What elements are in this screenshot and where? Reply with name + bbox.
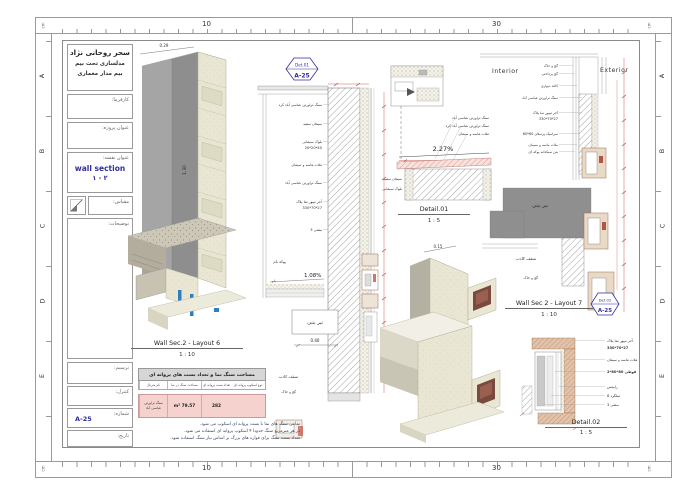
detail01-slope: 2.27% <box>433 145 454 153</box>
l7-label-4: آجر تیپور نما پلاک <box>533 110 559 115</box>
layout7-red-dims <box>617 58 626 312</box>
grid-letter-a-right: A <box>658 74 666 78</box>
titleblock-scale-box: مقیاس: <box>88 196 133 215</box>
roof-slope-line <box>270 279 324 282</box>
grid-letter-e-left: E <box>38 374 46 378</box>
roof-fill-label: پوکه بام <box>273 259 286 264</box>
slope-line <box>399 153 489 157</box>
titleblock-author-box: سحر روحانی نژاد مدلسازی تحت بیم بیم مدار… <box>67 44 133 91</box>
drawn-label: ترسیم: <box>68 363 132 371</box>
grid-letter-b-left: B <box>38 149 46 153</box>
grid-letter-a-left: A <box>38 74 46 78</box>
detail01-key-drawing <box>391 66 443 106</box>
table-note-2: در هر مترمربع سنگ حدودا ۴ اسکوپ پروانه ا… <box>150 428 300 435</box>
l7-label-7: ملات ماسه و سیمان <box>528 143 558 147</box>
titleblock-date-box: تاریخ: <box>67 430 133 447</box>
material-labels: سنگ تراورتن عباسی آباد کرد سیمان سفید بل… <box>279 102 323 232</box>
callout-det01-sheet: A-25 <box>294 73 309 80</box>
table-title: مساحت سنگ نما و تعداد بست های پروانه ای <box>138 368 266 381</box>
table-data-row: سنگ تراورتن عباسی آباد 79.57 m² 282 <box>138 394 266 418</box>
l7-label-1: گچ پرداختی <box>541 71 558 76</box>
ruler-top-divider <box>352 17 353 34</box>
grid-letter-b-right: B <box>658 149 666 153</box>
detail01-labels-left: سیمان سفید بلوک سیمانی <box>382 177 402 191</box>
ruler-unit-top-left: cm <box>41 22 46 28</box>
ruler-unit-bottom-right: cm <box>647 465 652 471</box>
table-cell-count: 282 <box>201 395 231 417</box>
client-label: کارفرما: <box>68 95 132 103</box>
author-subtitle-2: بیم مدار معماری <box>68 67 132 77</box>
sheet-title-label: عنوان نقشه: <box>68 153 132 161</box>
ruler-label-10-top: 10 <box>202 20 211 28</box>
interior-label: Interior <box>492 68 519 75</box>
roof-lines <box>480 54 598 57</box>
table-cell-material: سنگ تراورتن عباسی آباد <box>139 395 167 417</box>
ruler-unit-bottom-left: cm <box>41 465 46 471</box>
author-name: سحر روحانی نژاد <box>68 45 132 57</box>
d2-label-4: رابیتس <box>607 385 618 389</box>
callout-det01-ref: Det.01 <box>295 63 309 68</box>
detail01-label-l0: سیمان سفید <box>383 177 402 181</box>
project-label: عنوان پروژه: <box>68 123 132 131</box>
table-cell-area: 79.57 m² <box>167 395 201 417</box>
sheet-title-number: ۲ - ۱ <box>68 173 132 182</box>
author-subtitle-1: مدلسازی تحت بیم <box>68 57 132 67</box>
layout7-scale: 1 : 10 <box>505 312 593 318</box>
axon-main-scale: 1 : 10 <box>131 352 243 358</box>
beam-label: تیر بتنی <box>307 320 323 326</box>
north-arrow-icon <box>68 197 85 214</box>
material-label-4: ملات ماسه و سیمان <box>292 163 323 167</box>
l7-label-0: گچ و خاک <box>544 63 559 68</box>
checked-label: کنترل: <box>68 387 132 395</box>
axon-main-dim-width: 0.29 <box>140 43 194 54</box>
ruler-unit-top-right: cm <box>647 22 652 28</box>
detail02-title: Detail.02 <box>545 419 627 428</box>
titleblock-project-box: عنوان پروژه: <box>67 122 133 149</box>
titleblock-notes-box: توضیحات: <box>67 218 133 359</box>
l7-plaster-label: گچ و خاک <box>523 275 538 280</box>
material-label-2: بلوک سیمانی <box>302 139 322 144</box>
blue-anchor-3 <box>214 308 219 312</box>
material-label-6: آجر تیپور نما پلاک <box>296 199 323 204</box>
scale-label: مقیاس: <box>89 197 132 205</box>
stone-coping <box>397 158 491 169</box>
date-label: تاریخ: <box>68 431 132 439</box>
drawing-sheet: 10 30 10 30 cm cm cm cm A B C D E A B C … <box>0 0 700 495</box>
plaster-label: گچ و خاک <box>281 389 296 394</box>
callout-det02-sheet: A-25 <box>598 308 612 314</box>
d2-label-6: نبشی 3 <box>607 403 619 407</box>
callout-det01: Det.01 A-25 <box>286 58 318 80</box>
axon-main-dim-height: 1.30 <box>182 165 188 175</box>
d2-label-3: قوطی 80*80*2 <box>607 370 637 374</box>
materials-table: مساحت سنگ نما و تعداد بست های پروانه ای … <box>138 368 266 418</box>
d2-label-0: آجر تیپور نما پلاک <box>607 338 634 343</box>
slope-label: 1.08% <box>304 273 321 279</box>
beam-block <box>136 268 166 300</box>
ruler-label-30-bottom: 30 <box>492 464 501 472</box>
ruler-label-30-top: 30 <box>492 20 501 28</box>
ruler-right-ticks <box>656 41 661 421</box>
material-label-0: سنگ تراورتن عباسی آباد کرد <box>279 102 322 107</box>
axon-main-title: Wall Sec.2 - Layout 6 <box>131 340 243 349</box>
frame-section <box>535 352 561 410</box>
grid-letter-d-left: D <box>39 298 47 303</box>
plaster-hatch <box>522 386 532 414</box>
grid-letter-e-right: E <box>658 374 666 378</box>
sheet-title: wall section <box>68 161 132 173</box>
mortar-left <box>405 169 413 200</box>
lower-hatch-column <box>562 238 584 286</box>
axon-small-dim-a: 0.15 <box>434 244 443 249</box>
ruler-label-10-bottom: 10 <box>202 464 211 472</box>
window-head-frame <box>582 148 606 178</box>
titleblock-checked-box: کنترل: <box>67 386 133 406</box>
ceiling-void-lines <box>482 244 538 248</box>
ceiling-slab <box>258 86 328 90</box>
l7-label-6: سرامیک پرسلان 60*60 <box>523 132 558 136</box>
detail01-label-l1: بلوک سیمانی <box>382 186 402 191</box>
material-label-1: سیمان سفید <box>303 122 322 126</box>
detail01-scale: 1 : 5 <box>398 218 470 224</box>
l7-label-2: کاغذ دیواری <box>541 84 559 88</box>
ruler-top-ticks <box>62 29 640 34</box>
d2-label-5: میلگرد 8 <box>607 393 620 398</box>
titleblock-number-box: شماره: A-25 <box>67 408 133 428</box>
titleblock-drawn-box: ترسیم: <box>67 362 133 384</box>
gravel-strip <box>266 284 324 289</box>
grid-letter-d-right: D <box>659 298 667 303</box>
layout7-leaders <box>559 66 582 152</box>
notes-label: توضیحات: <box>68 219 132 227</box>
ruler-left-ticks <box>46 41 51 421</box>
l7-beam-label: تیر بتنی <box>532 203 548 209</box>
l7-label-8: بتن سبکدانه پوکه ای <box>528 150 558 154</box>
layout7-material-labels: گچ و خاک گچ پرداختی کاغذ دیواری سنگ تراو… <box>522 63 559 154</box>
d2-label-1: 330*70*27 <box>607 346 629 350</box>
detail02-labels: آجر تیپور نما پلاک 330*70*27 ملات ماسه و… <box>607 338 638 407</box>
beam-dim: 0.40 <box>311 338 320 343</box>
detail02-scale: 1 : 5 <box>545 430 627 436</box>
material-label-5: سنگ تراورتن عباسی آباد <box>285 180 322 185</box>
ruler-bottom-ticks <box>62 462 640 467</box>
roof-label: بام <box>272 279 276 284</box>
table-header-area: مساحت سنگ در نما <box>167 381 201 389</box>
axon-main-view: 0.29 1.30 <box>128 40 268 340</box>
mortar-dot-band <box>360 88 369 393</box>
material-label-7: 330*70*27 <box>302 206 322 210</box>
d2-label-2: ملات ماسه و سیمان <box>607 358 638 362</box>
titleblock-client-box: کارفرما: <box>67 94 133 119</box>
l7-label-3: سنگ تراورتن عباسی آباد <box>522 95 558 100</box>
table-notes: تمامی سنگ های نما با بست پروانه ای اسکوپ… <box>150 421 300 443</box>
label-leaders <box>323 105 328 230</box>
layout7-view: Interior Exterior گچ و خاک گچ پرداختی کا… <box>478 50 632 342</box>
callout-det02-ref: Det.02 <box>599 298 612 303</box>
table-header-type: نوع اسکوپ پروانه ای <box>231 381 265 389</box>
wall-hatch-band <box>328 88 360 393</box>
scale-icon-box <box>67 196 86 215</box>
sheet-number: A-25 <box>75 415 92 423</box>
material-label-3: 20*20*40 <box>305 146 323 150</box>
detail01-title: Detail.01 <box>398 206 470 215</box>
interior-wall-lines <box>263 94 266 298</box>
table-cell-type <box>231 395 265 417</box>
table-header-material: نام متریال <box>139 381 167 389</box>
false-ceiling-label: سقف کاذب <box>279 374 299 379</box>
ruler-bottom-divider <box>352 461 353 478</box>
grid-letter-c-right: C <box>658 224 666 229</box>
titleblock-sheet-title-box: عنوان نقشه: wall section ۲ - ۱ <box>67 152 133 193</box>
table-note-3: تعداد بست سنگ برای قواره های بزرگ بر اسا… <box>150 435 300 442</box>
table-header-row: نام متریال مساحت سنگ در نما تعداد بست پر… <box>138 381 266 390</box>
layout7-title: Wall Sec 2 - Layout 7 <box>505 300 593 309</box>
l7-label-5: 330*70*27 <box>539 117 558 121</box>
table-header-count: تعداد بست پروانه ای <box>201 381 231 389</box>
l7-false-ceiling-label: سقف کاذب <box>516 256 537 261</box>
material-label-8: نبشی 3 <box>310 228 322 232</box>
grid-letter-c-left: C <box>38 224 46 229</box>
svg-text:0.29: 0.29 <box>160 43 169 48</box>
table-note-1: تمامی سنگ های نما با بست پروانه ای اسکوپ… <box>150 421 300 428</box>
concrete-slab-area <box>490 211 524 238</box>
